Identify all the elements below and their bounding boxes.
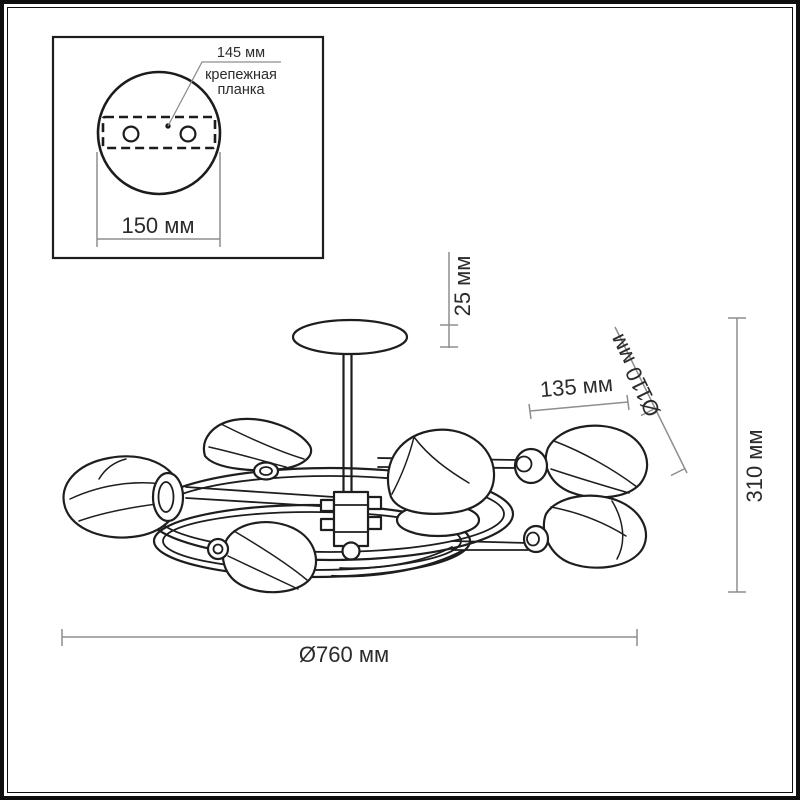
central-hub [321, 492, 381, 560]
mounting-plate-inset: 145 мм крепежная планка 150 мм [53, 37, 323, 258]
lamp-shade-top [204, 419, 311, 470]
socket-left [153, 473, 183, 521]
ceiling-canopy [293, 320, 407, 354]
dim-shade-length: 135 мм [529, 371, 629, 419]
lamp-shade-right-top [546, 426, 647, 498]
bracket-name-line1: крепежная [205, 67, 277, 83]
dim-label-135mm: 135 мм [539, 371, 614, 402]
dim-label-150mm: 150 мм [121, 213, 194, 238]
bracket-name-line2: планка [217, 82, 265, 98]
dim-label-110mm: Ø110 мм [604, 330, 665, 421]
socket-right-bottom [524, 526, 548, 552]
dim-overall-diameter: Ø760 мм [62, 629, 637, 667]
socket-top [254, 463, 278, 480]
dim-label-310mm: 310 мм [742, 429, 767, 502]
bracket-length-label: 145 мм [217, 45, 265, 61]
dim-label-25mm: 25 мм [450, 256, 475, 317]
socket-bottom-left [208, 539, 228, 559]
chandelier-dimension-diagram: 145 мм крепежная планка 150 мм [0, 0, 800, 800]
dim-canopy-height: 25 мм [440, 252, 475, 348]
drawing-canvas: 145 мм крепежная планка 150 мм [0, 0, 800, 800]
dim-overall-height: 310 мм [728, 318, 767, 592]
hub-finial-ball [343, 543, 360, 560]
lamp-shade-bottom-left [223, 522, 316, 592]
socket-right-top [515, 449, 547, 483]
lamp-shade-right-bottom [544, 496, 646, 568]
lamp-shade-center [388, 430, 494, 514]
dim-label-760mm: Ø760 мм [299, 642, 389, 667]
chandelier-fixture [64, 320, 648, 592]
